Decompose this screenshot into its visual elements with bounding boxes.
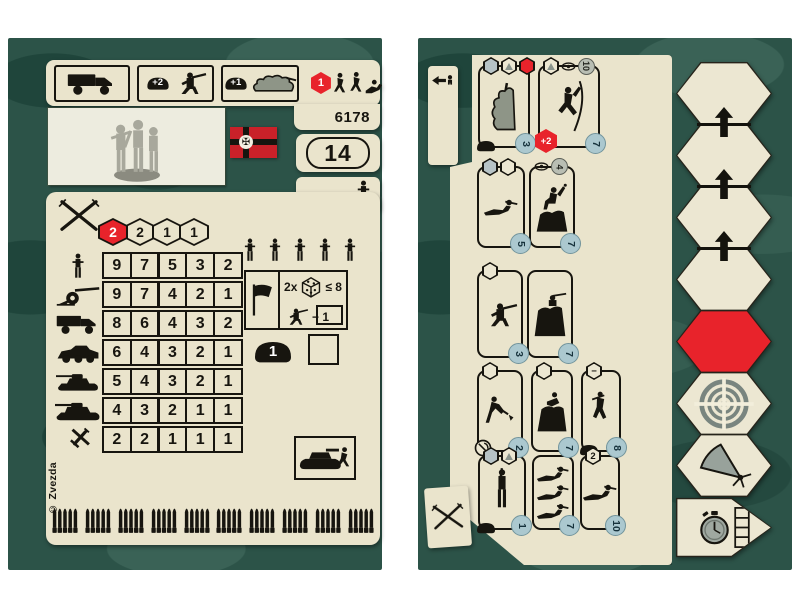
hex-badge: 2	[585, 447, 601, 465]
point-value: 14	[306, 137, 370, 169]
advance-arrow	[714, 229, 734, 263]
combat-row-truck: 86432	[54, 310, 243, 337]
ammo-clip-icon	[85, 502, 111, 536]
crawling-soldier-icon	[582, 483, 618, 502]
order-panels: 310+275473727−817210	[450, 55, 672, 565]
helmet-badge-value: +1	[223, 77, 249, 88]
combat-row-infantry: 97532	[54, 252, 243, 279]
attack-die-value: 2	[136, 224, 144, 240]
combat-value: 4	[130, 339, 160, 366]
combat-value: 1	[157, 426, 187, 453]
heavy-tank-icon	[55, 401, 101, 421]
hex-track	[676, 62, 772, 559]
morale-multiplier: 2x	[284, 280, 297, 294]
target-icon-cell	[54, 283, 102, 307]
combat-value: 4	[157, 281, 187, 308]
combat-value: 5	[157, 252, 187, 279]
ammo-clip-icon	[216, 502, 242, 536]
triangle-icon	[505, 453, 513, 460]
attack-die-hex: 2	[125, 218, 155, 246]
ammo-clip-icon	[249, 502, 275, 536]
order-panel: 210	[580, 455, 620, 530]
squad-strength-row	[244, 238, 356, 262]
combat-row-artillery: 97421	[54, 281, 243, 308]
helmet-icon	[475, 139, 497, 153]
combat-value: 3	[185, 252, 215, 279]
header-slot-truck	[54, 65, 130, 102]
soldier-icon	[283, 307, 309, 326]
advance-arrow	[714, 105, 734, 139]
movement-cost: 3	[515, 133, 536, 154]
combat-value: 1	[213, 426, 243, 453]
target-icon-cell	[54, 253, 102, 279]
ammo-clip-icon	[184, 502, 210, 536]
header-slot-advancing-squad: 1	[306, 67, 388, 100]
light-tank-icon	[56, 371, 100, 392]
attack-die-value: 1	[163, 224, 171, 240]
morale-box: 2x ≤ 8 − 1	[244, 270, 348, 330]
combat-value: 6	[130, 310, 160, 337]
stopwatch-icon	[698, 509, 731, 546]
counter-badge: 4	[551, 158, 568, 175]
ammo-clip-icon	[315, 502, 341, 536]
camouflage-emplacement-icon	[251, 73, 297, 94]
infantry-icon	[72, 253, 84, 279]
combat-value: 3	[157, 368, 187, 395]
armor-value: 1	[250, 339, 296, 363]
ammo-clip-icon	[348, 502, 374, 536]
combat-value: 6	[102, 339, 132, 366]
armored-car-icon	[56, 342, 100, 364]
squad-soldier-icon	[269, 238, 281, 262]
order-panel: 7	[531, 370, 573, 452]
three-crawlers-icon	[536, 464, 570, 522]
hex-minus-badge: −	[586, 362, 602, 380]
movement-cost: 3	[508, 343, 529, 364]
combat-value: 1	[185, 397, 215, 424]
attack-die-value: 2	[109, 224, 117, 240]
unit-photo	[48, 108, 225, 185]
squad-soldier-icon	[294, 238, 306, 262]
climbing-soldier-icon	[553, 80, 585, 134]
combat-row-armored-car: 64321	[54, 339, 243, 366]
squad-miniature-image	[91, 115, 183, 185]
combat-value: 4	[157, 310, 187, 337]
combat-value: 4	[130, 368, 160, 395]
melee-box	[424, 486, 472, 549]
combat-row-aircraft: 22111	[54, 426, 243, 453]
hex-outline-badge	[500, 158, 516, 176]
combat-value: 1	[185, 426, 215, 453]
helmet-badge: +2	[145, 75, 171, 92]
combat-value: 9	[102, 281, 132, 308]
order-panel: 2	[477, 370, 523, 452]
hex-triangle-badge	[501, 447, 517, 465]
header-slots: +2+11	[46, 65, 396, 102]
flag-horizontal-stripe	[230, 139, 277, 145]
movement-cost: 1	[511, 515, 532, 536]
hex-triangle-badge	[543, 57, 559, 75]
ammo-clip-icon	[151, 502, 177, 536]
ammo-clip-icon	[282, 502, 308, 536]
header-slot-soldier-firing: +2	[137, 65, 213, 102]
movement-cost: 8	[606, 437, 627, 458]
advance-arrow	[714, 167, 734, 201]
combat-value: 1	[213, 339, 243, 366]
hex-red-badge	[519, 57, 535, 75]
artillery-icon	[56, 283, 100, 307]
helmet-icon	[475, 521, 497, 535]
target-icon	[694, 378, 754, 430]
order-panel: 3	[478, 65, 530, 148]
grid4-icon	[734, 505, 750, 550]
unit-card-header: +2+11	[46, 60, 380, 106]
combat-value: 5	[102, 368, 132, 395]
target-icon-cell	[54, 342, 102, 364]
combat-value: 7	[130, 281, 160, 308]
movement-cost: 10	[605, 515, 626, 536]
truck-icon	[56, 312, 100, 336]
order-panel: 1	[478, 455, 526, 530]
descending-soldier-icon	[589, 389, 613, 433]
combat-value: 2	[102, 426, 132, 453]
attack-die-value: 1	[190, 224, 198, 240]
combat-value: 2	[185, 339, 215, 366]
camouflage-emplacement-tall-icon	[489, 79, 519, 135]
ammo-strip	[52, 502, 374, 536]
movement-cost: 7	[558, 437, 579, 458]
squad-soldier-icon	[344, 238, 356, 262]
morale-threshold: ≤ 8	[325, 280, 342, 294]
aircraft-icon	[66, 427, 91, 452]
target-icon-cell	[54, 401, 102, 421]
morale-flag-cell	[246, 272, 280, 328]
target-icon-cell	[54, 371, 102, 392]
assault-box	[294, 436, 356, 480]
target-icon-cell	[54, 427, 102, 452]
catalog-number: 6178	[335, 109, 370, 126]
combat-value: 2	[213, 252, 243, 279]
track-hex-4	[676, 310, 772, 373]
armor-empty-square	[308, 334, 339, 365]
morale-empty-box	[316, 305, 343, 325]
soldier-in-foxhole-icon	[533, 291, 567, 337]
armor-helmet: 1	[250, 338, 296, 366]
catalog-number-tab: 6178	[294, 104, 380, 130]
red-hex-footer: +2	[535, 129, 557, 153]
digging-soldier-icon	[484, 394, 516, 428]
tank-and-runner-icon	[298, 441, 352, 475]
german-war-ensign-flag: ✠	[230, 127, 277, 158]
track-hex-7	[676, 496, 772, 559]
attack-die-hex: 1	[179, 218, 209, 246]
combat-value: 2	[130, 426, 160, 453]
hex-gray-badge	[483, 447, 499, 465]
order-panel: 3	[477, 270, 523, 358]
order-panel: 7	[527, 270, 573, 358]
black-flag-icon	[250, 280, 274, 320]
order-panel: 10+27	[538, 65, 600, 148]
combat-value: 7	[130, 252, 160, 279]
order-panel: 47	[529, 166, 575, 248]
hex-outline-badge	[536, 362, 552, 380]
target-icon-cell	[54, 312, 102, 336]
combat-value: 9	[102, 252, 132, 279]
combat-value: 3	[157, 339, 187, 366]
standing-shooter-icon	[493, 468, 511, 518]
squad-soldier-icon	[319, 238, 331, 262]
movement-cost: 7	[559, 515, 580, 536]
crawling-soldier-icon	[483, 198, 519, 217]
combat-value: 1	[213, 368, 243, 395]
hex-outline-badge	[482, 362, 498, 380]
track-hex-6	[676, 434, 772, 497]
triangle-icon	[547, 63, 555, 70]
dice-icon	[299, 275, 323, 299]
combat-value: 3	[185, 310, 215, 337]
copyright: © Zvezda	[47, 447, 59, 515]
hex-gray-badge	[482, 158, 498, 176]
grenade-thrower-icon	[535, 181, 569, 233]
combat-value: 2	[185, 368, 215, 395]
combat-value: 2	[185, 281, 215, 308]
truck-icon	[67, 70, 117, 97]
movement-cost: 7	[558, 343, 579, 364]
track-hex-5	[676, 372, 772, 435]
soldier-firing-icon	[173, 70, 207, 96]
crossed-rifles-icon	[56, 198, 102, 234]
morale-roll: 2x ≤ 8	[280, 272, 346, 302]
climbing-out-soldier-icon	[535, 390, 569, 432]
eye-icon	[561, 62, 576, 71]
combat-table: 97532974218643264321543214321122111	[54, 252, 243, 455]
point-value-box: 14	[296, 134, 380, 172]
order-panel: 5	[477, 166, 525, 248]
attack-die-hex: 1	[152, 218, 182, 246]
header-slot-camouflage-emplacement: +1	[221, 65, 299, 102]
red-hex-badge: 1	[311, 72, 331, 94]
movement-cost: 7	[585, 133, 606, 154]
advancing-squad-icon	[333, 71, 383, 95]
helmet-badge-value: +2	[145, 77, 171, 88]
attack-die-hex: 2	[98, 218, 128, 246]
hex-triangle-badge	[501, 57, 517, 75]
stat-panel: 2211 97532974218643264321543214321122111…	[46, 192, 380, 545]
combat-value: 4	[102, 397, 132, 424]
combat-row-light-tank: 54321	[54, 368, 243, 395]
order-panel: 7	[532, 455, 574, 530]
eye-icon	[534, 162, 549, 171]
morale-right-cell: 2x ≤ 8 − 1	[280, 272, 346, 328]
counter-badge: 10	[578, 58, 595, 75]
iron-cross-icon: ✠	[239, 135, 253, 149]
hex-outline-badge	[482, 262, 498, 280]
mg-arc-icon	[693, 443, 755, 489]
helmet-badge: +1	[223, 75, 249, 92]
movement-cost: 7	[560, 233, 581, 254]
ammo-clip-icon	[118, 502, 144, 536]
combat-value: 1	[213, 397, 243, 424]
combat-value: 3	[130, 397, 160, 424]
combat-row-heavy-tank: 43211	[54, 397, 243, 424]
crossed-rifles-icon	[430, 502, 466, 532]
movement-cost: 5	[510, 233, 531, 254]
squad-soldier-icon	[244, 238, 256, 262]
attack-dice-row: 2211	[98, 218, 206, 246]
kneeling-shooter-icon	[482, 301, 518, 328]
combat-value: 8	[102, 310, 132, 337]
combat-value: 2	[157, 397, 187, 424]
triangle-icon	[505, 63, 513, 70]
hex-gray-badge	[483, 57, 499, 75]
order-panel: −8	[581, 370, 621, 452]
combat-value: 2	[213, 310, 243, 337]
combat-value: 1	[213, 281, 243, 308]
